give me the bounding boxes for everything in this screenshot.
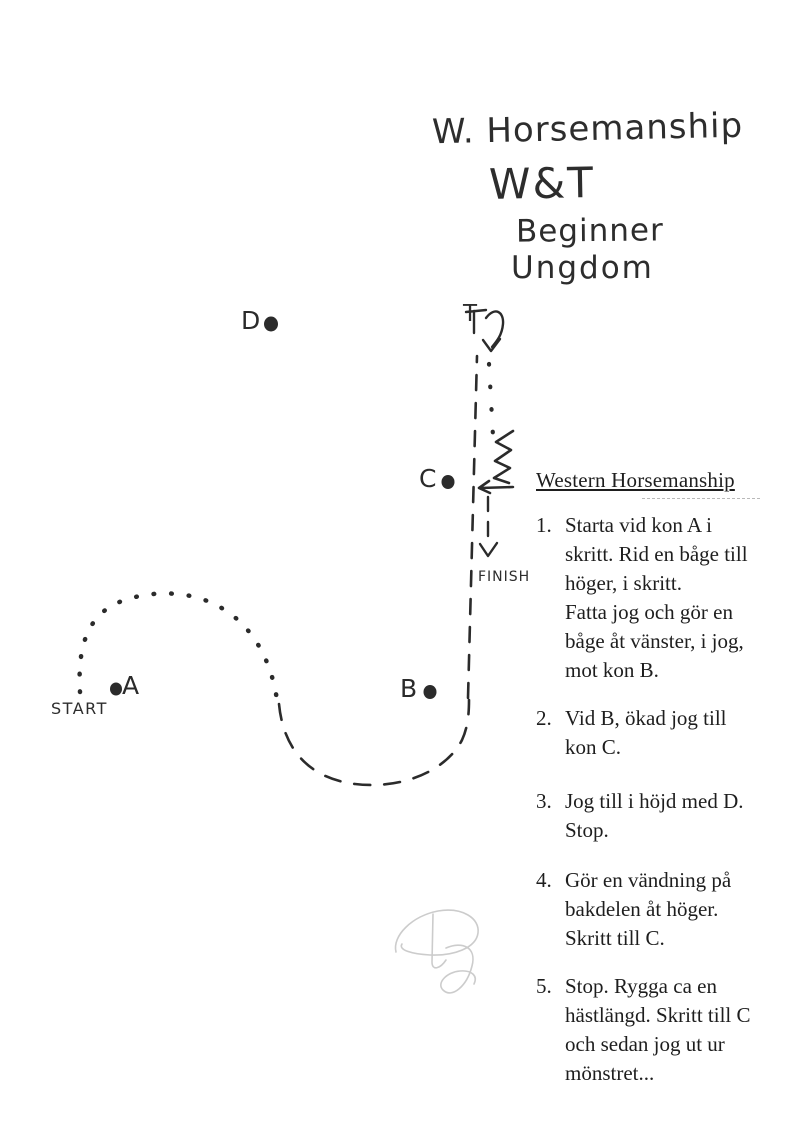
turn-curl-arrow bbox=[486, 311, 503, 347]
instructions-heading: Western Horsemanship bbox=[536, 468, 794, 493]
backup-zigzag bbox=[494, 431, 513, 483]
item-number: 3. bbox=[536, 787, 565, 845]
item-text: Vid B, ökad jog till kon C. bbox=[565, 704, 794, 762]
item-number: 2. bbox=[536, 704, 565, 762]
turn-arrowhead-icon bbox=[483, 339, 500, 351]
item-text: Gör en vändning på bakdelen åt höger. Sk… bbox=[565, 866, 794, 953]
finish-label: FINISH bbox=[478, 570, 530, 584]
instruction-item-5: 5. Stop. Rygga ca en hästlängd. Skritt t… bbox=[536, 972, 794, 1088]
cone-b-dot bbox=[424, 685, 437, 699]
item-text: Jog till i höjd med D. Stop. bbox=[565, 787, 794, 845]
item-number: 1. bbox=[536, 511, 565, 685]
instruction-item-1: 1. Starta vid kon A i skritt. Rid en båg… bbox=[536, 511, 794, 685]
instruction-item-4: 4. Gör en vändning på bakdelen åt höger.… bbox=[536, 866, 794, 953]
walk-down-dotted bbox=[489, 364, 493, 436]
item-number: 4. bbox=[536, 866, 565, 953]
start-label: START bbox=[51, 701, 108, 717]
scanned-pattern-page: W. Horsemanship W&T Beginner Ungdom bbox=[0, 0, 800, 1123]
cone-d-dot bbox=[264, 317, 278, 332]
instructions-block: Western Horsemanship 1. Starta vid kon A… bbox=[536, 468, 794, 1088]
instruction-item-3: 3. Jog till i höjd med D. Stop. bbox=[536, 787, 794, 845]
turn-marker-label: T bbox=[463, 303, 477, 326]
pencil-signature bbox=[395, 910, 478, 993]
cone-c-label: C bbox=[419, 466, 436, 491]
item-text: Starta vid kon A i skritt. Rid en båge t… bbox=[565, 511, 794, 685]
cone-a-dot bbox=[110, 683, 122, 696]
jog-line-dashed bbox=[468, 356, 477, 698]
instruction-item-2: 2. Vid B, ökad jog till kon C. bbox=[536, 704, 794, 762]
scan-artifact-line bbox=[642, 498, 760, 499]
cone-a-label: A bbox=[122, 673, 139, 698]
finish-arrowhead-icon bbox=[480, 543, 497, 556]
item-number: 5. bbox=[536, 972, 565, 1088]
cone-c-dot bbox=[442, 475, 455, 489]
cone-b-label: B bbox=[400, 676, 417, 701]
jog-curve-dashed bbox=[279, 700, 469, 785]
cone-d-label: D bbox=[241, 308, 260, 333]
item-text: Stop. Rygga ca en hästlängd. Skritt till… bbox=[565, 972, 794, 1088]
walk-arc-dotted bbox=[80, 593, 277, 700]
